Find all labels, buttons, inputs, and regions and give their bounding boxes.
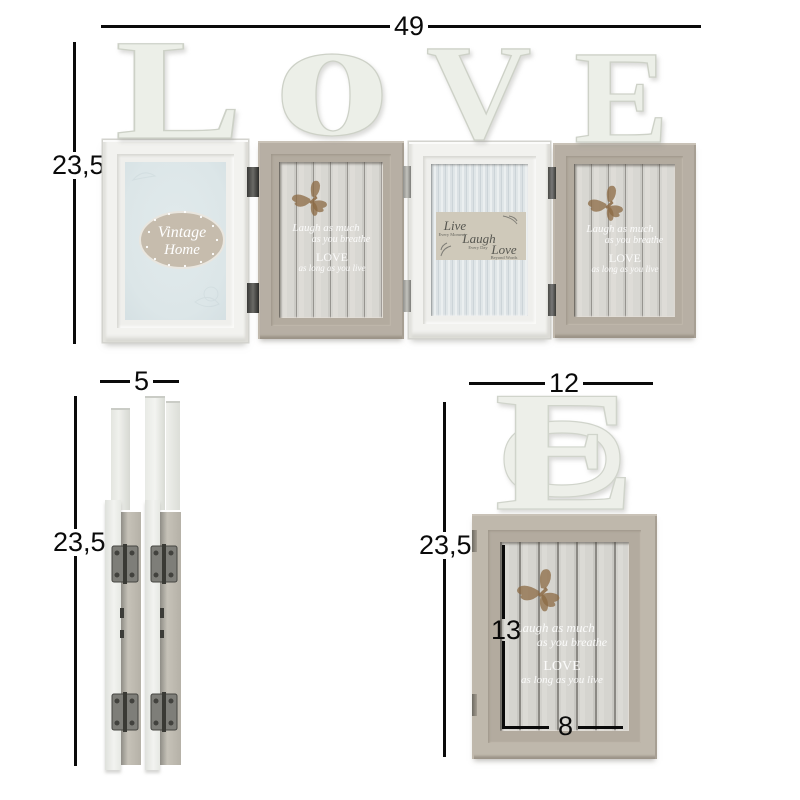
svg-text:Home: Home <box>163 242 200 258</box>
svg-text:Laugh as much: Laugh as much <box>291 222 360 234</box>
svg-text:LOVE: LOVE <box>543 659 580 674</box>
svg-text:Beyond Words: Beyond Words <box>491 255 518 260</box>
svg-text:as long as you live: as long as you live <box>521 674 603 686</box>
svg-text:as you breathe: as you breathe <box>605 235 664 246</box>
svg-text:Laugh as much: Laugh as much <box>514 620 594 635</box>
svg-text:L: L <box>115 10 243 160</box>
svg-text:V: V <box>426 17 531 160</box>
svg-text:LOVE: LOVE <box>609 251 641 265</box>
svg-text:as long as you live: as long as you live <box>592 264 659 274</box>
svg-text:Laugh as much: Laugh as much <box>585 223 654 235</box>
svg-text:as you breathe: as you breathe <box>312 234 371 245</box>
svg-text:as you breathe: as you breathe <box>537 635 608 649</box>
svg-text:as long as you live: as long as you live <box>299 263 366 273</box>
svg-text:LOVE: LOVE <box>316 250 348 264</box>
svg-text:E: E <box>574 23 669 160</box>
svg-text:E: E <box>494 385 636 520</box>
svg-text:Every Day: Every Day <box>468 245 488 250</box>
svg-text:Vintage: Vintage <box>158 224 207 241</box>
